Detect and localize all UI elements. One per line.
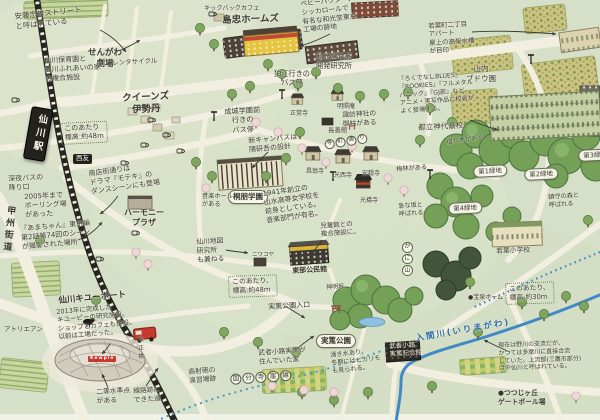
note-late-night-bus: 深夜バスの 降り口 (8, 173, 44, 193)
note-amachan: 『あまちゃん』東京編 第2話第74回のシーン が撮影された場所 (20, 219, 92, 252)
note-mistletoe: 宿り木がある (446, 134, 484, 147)
label-chizu-lab: 仙川地図 研究所 も兼ねる (196, 237, 225, 265)
label-shinmei-zaka: 神明坂 (326, 283, 344, 292)
note-kengo-kuma: 新キャンパスは 隈研吾の設計 (248, 133, 298, 155)
note-bowling: 2005年まで ボーリング場 があった (24, 191, 67, 220)
note-spring-water: 湧き水あり。 冬期にはヒカリモ も見られる。 (330, 347, 382, 376)
label-koshu-kaido: 甲州街道 (0, 205, 16, 254)
label-atelier-an: アトリエアン (4, 325, 43, 333)
note-wakodo-site: ベビーパウダー、 シッカロールで 有名な和光堂東京 工場の跡地 (300, 0, 358, 35)
note-irimagawa: 現在は野川の支流だが、 かつては多摩川に直接合流 していた。上流部(三鷹市部分)… (498, 339, 582, 373)
label-kewpie-sign: Kewpie (88, 356, 116, 362)
label-shimachu: 島忠ホームズ (222, 13, 279, 27)
label-rental-cycle: レンタサイクル (112, 57, 158, 68)
note-hoikuen-fureai: 仙川保育園と 仙川ふれあいの家 の複合施設 (44, 54, 101, 84)
label-bus-komae: 狛江行きの バス停 (274, 69, 310, 88)
label-ryokuchi-3: 第3緑地 (578, 148, 600, 162)
label-bus-seijo: 成城学園前 行きの バス停 (224, 105, 261, 135)
label-harmony-plaza: ハーモニー プラザ (124, 208, 164, 229)
label-kickback-cafe: キックバックカフェ (204, 5, 259, 13)
label-sengawa-station: 仙川駅 (23, 106, 54, 162)
label-queens-isetan: クイーンズ 伊勢丹 (122, 91, 170, 118)
label-ryokuchi-1: 第1緑地 (473, 164, 507, 178)
note-music-hall: 音楽ホール がある (202, 193, 233, 209)
note-jindai-anime: 『ろくでなしBLUES』 『ROOKIES』『フルメタル パニック』『GJ部』な… (398, 71, 475, 116)
label-teramachi-dori: 寺町通り (324, 133, 369, 151)
note-chinju-no-mori: 鎮守の森と 呼ばれる (548, 192, 580, 210)
label-niwakoya: ニワコヤ (252, 252, 274, 259)
label-kosaiji: 光西寺 (334, 172, 352, 180)
label-kaniyama: かに山 (402, 242, 414, 277)
label-kokubunji-gaisen: 国分寺崖線 (230, 370, 293, 387)
note-ando-street: 安藤忠雄ストリート と呼ばれている (14, 5, 83, 31)
label-wakodo-lab: 和光堂食品 開発研究所 (316, 52, 352, 71)
label-tobu-kominkan: 東部公民館 (292, 265, 327, 276)
label-taisho-bashi: 大正橋 (136, 336, 143, 362)
label-saneatsu-museum: 武者小路 実篤記念館 (389, 340, 422, 359)
note-saneatsu-house: 武者小路実篤が 住んでいた家 (258, 346, 307, 367)
label-saneatsu-entrance: 実篤公園入口 (268, 301, 310, 312)
label-chozenkan: 長善館 (328, 126, 348, 134)
note-benchmark: 二等水準点 がある (96, 386, 131, 405)
note-aa-gun-site: 高射砲の 演習場跡 (188, 366, 217, 386)
label-shogakuji: 正覚寺 (290, 110, 308, 118)
label-ryokuchi-4: 第4緑地 (448, 201, 482, 215)
label-wakaba-elementary: 若葉小学校 (496, 246, 530, 256)
label-annonji: 安穏寺 (362, 170, 380, 178)
note-plum-grove: 梅林がある (396, 164, 427, 174)
label-ryokuchi-2: 第2緑地 (524, 167, 558, 181)
label-jindai-highschool: 都立神代高校 (418, 121, 463, 133)
label-shoohji: 昌翁寺 (306, 168, 324, 176)
illustrated-map-sengawa: 安藤忠雄ストリート と呼ばれているせんがわ 劇場仙川保育園と 仙川ふれあいの家 … (0, 0, 600, 420)
note-elevation-48-station: このあたり 標高:約48m (60, 121, 108, 146)
label-irimagawa: 入間川(いりまがわ) (415, 317, 511, 345)
label-meishoan: 明照庵 (337, 103, 355, 111)
note-rail-trace-road: 線路跡に できた道 (133, 386, 161, 405)
label-saneatsu-park: 実篤公園 (316, 334, 356, 348)
map-labels-layer: 安藤忠雄ストリート と呼ばれているせんがわ 劇場仙川保育園と 仙川ふれあいの家 … (0, 0, 600, 420)
note-toho-history: 1941年創立の 山水高等女学校を 前身としている。 音楽部門が有名。 (262, 182, 323, 226)
note-jidokan-fukugo: 児童館との 複合施設に。 (320, 219, 360, 239)
label-kokyoji: 光橋寺 (360, 197, 378, 205)
note-kewport: 2013年に完成した キユーピーの研究施設。 ショップとカフェも併設。 以前は工… (56, 301, 137, 341)
note-elevation-48-park: このあたり、 標高:約48m (228, 274, 277, 297)
note-elevation-30: このあたり、 標高:約30m (505, 281, 554, 304)
note-wakaba-apartment: 若葉町二丁目 アパート 屋上の高架水槽 が目印 (428, 20, 475, 56)
label-gateball: ●つつじヶ丘 ゲートボール場 (498, 389, 546, 407)
note-moteki: 商店街通りは ドラマ『モテキ』の ダンスシーンにも登場 (88, 160, 161, 197)
label-hosen-home: ●宝泉ホーム (468, 294, 503, 302)
note-steep-slope: 急な坂と 呼ばれる (398, 201, 424, 219)
label-seiyu: 西友 (73, 154, 92, 164)
